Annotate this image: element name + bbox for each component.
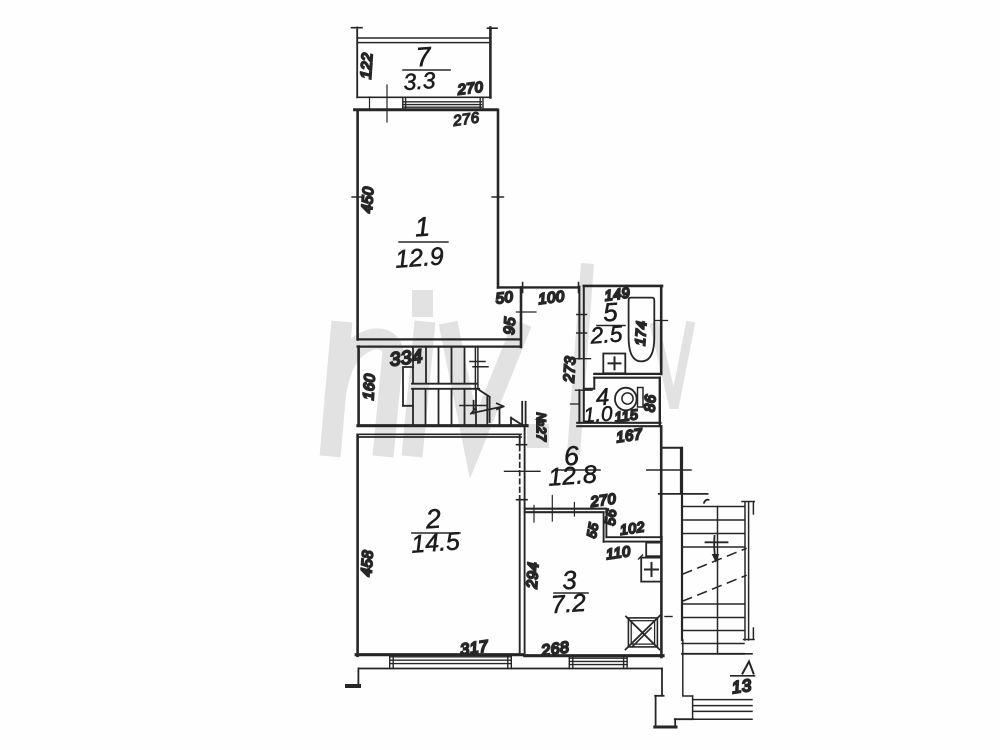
svg-text:50: 50 xyxy=(495,289,515,308)
svg-text:450: 450 xyxy=(359,186,378,214)
svg-text:294: 294 xyxy=(524,561,543,590)
svg-text:1.0: 1.0 xyxy=(583,403,614,428)
svg-text:7.2: 7.2 xyxy=(550,589,587,619)
svg-text:№27: №27 xyxy=(534,413,548,442)
svg-text:270: 270 xyxy=(456,80,484,99)
svg-text:110: 110 xyxy=(605,544,632,563)
svg-text:167: 167 xyxy=(615,426,644,447)
svg-text:458: 458 xyxy=(358,549,377,577)
svg-text:273: 273 xyxy=(561,355,580,384)
svg-text:174: 174 xyxy=(632,320,650,346)
svg-text:56: 56 xyxy=(602,508,619,526)
svg-text:12.9: 12.9 xyxy=(394,242,445,273)
svg-text:102: 102 xyxy=(619,518,646,537)
svg-text:3.3: 3.3 xyxy=(403,67,437,95)
svg-text:276: 276 xyxy=(451,109,481,130)
svg-text:122: 122 xyxy=(358,52,377,80)
svg-text:160: 160 xyxy=(360,373,379,401)
svg-text:86: 86 xyxy=(641,394,659,413)
svg-text:95: 95 xyxy=(501,316,519,335)
svg-text:13: 13 xyxy=(731,676,753,698)
svg-text:2.5: 2.5 xyxy=(589,320,624,348)
svg-text:115: 115 xyxy=(613,406,639,425)
svg-text:100: 100 xyxy=(537,288,566,308)
svg-text:12.8: 12.8 xyxy=(547,460,598,491)
svg-text:14.5: 14.5 xyxy=(410,527,461,558)
svg-text:55: 55 xyxy=(584,521,602,539)
svg-text:1: 1 xyxy=(414,212,431,243)
